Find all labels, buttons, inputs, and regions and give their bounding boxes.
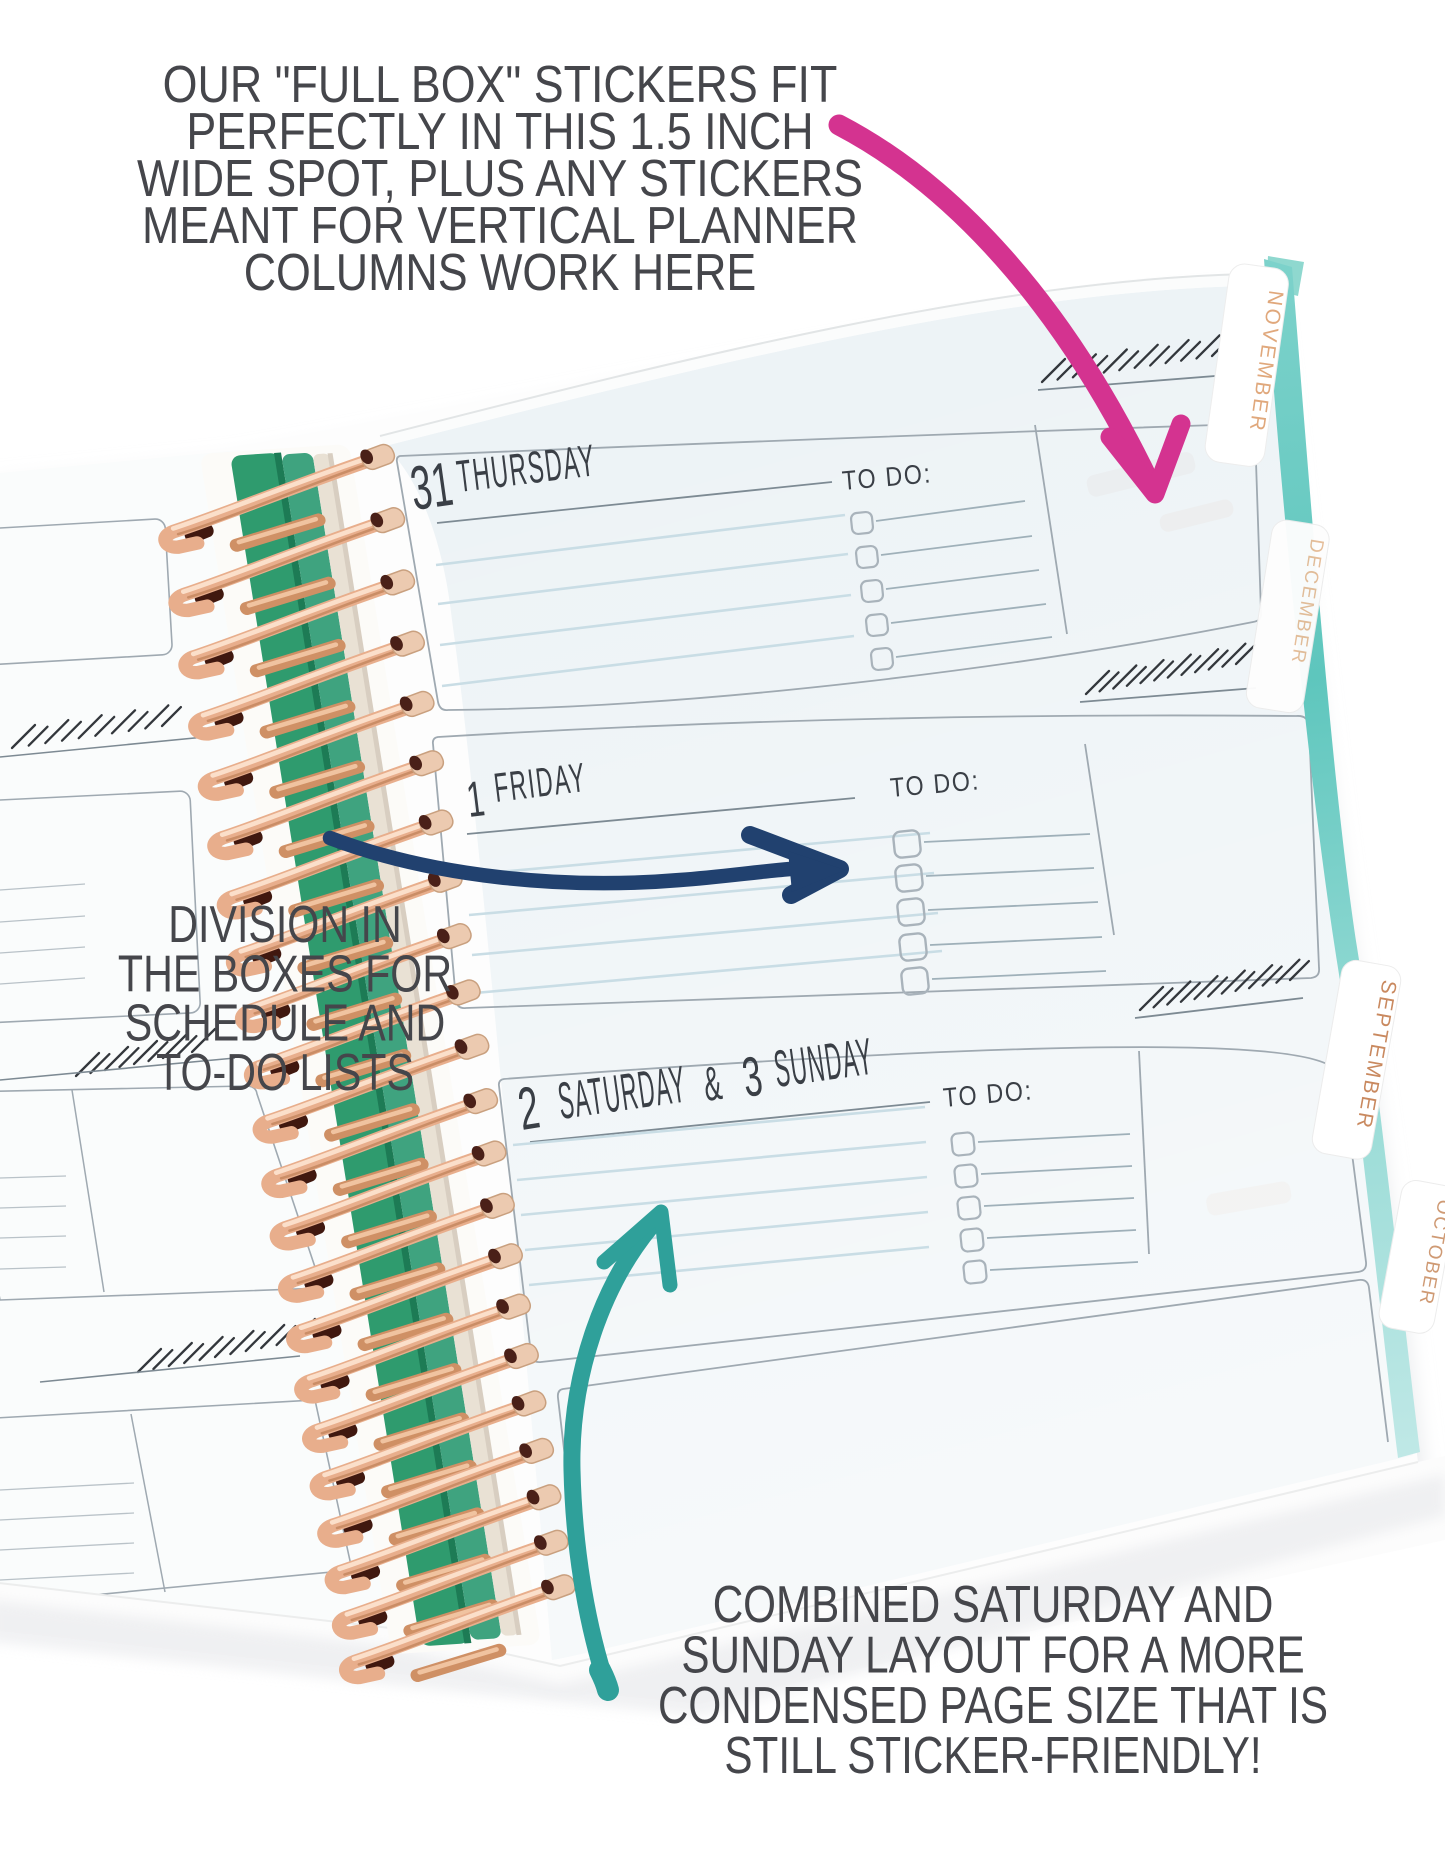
svg-text:COMBINED SATURDAY AND: COMBINED SATURDAY AND [713,1575,1274,1633]
svg-text:TO-DO LISTS: TO-DO LISTS [156,1044,414,1101]
svg-text:STILL STICKER-FRIENDLY!: STILL STICKER-FRIENDLY! [724,1726,1261,1784]
svg-text:COLUMNS WORK HERE: COLUMNS WORK HERE [244,244,757,302]
svg-text:SUNDAY LAYOUT FOR A MORE: SUNDAY LAYOUT FOR A MORE [681,1625,1304,1683]
svg-text:CONDENSED PAGE SIZE THAT IS: CONDENSED PAGE SIZE THAT IS [658,1676,1328,1734]
